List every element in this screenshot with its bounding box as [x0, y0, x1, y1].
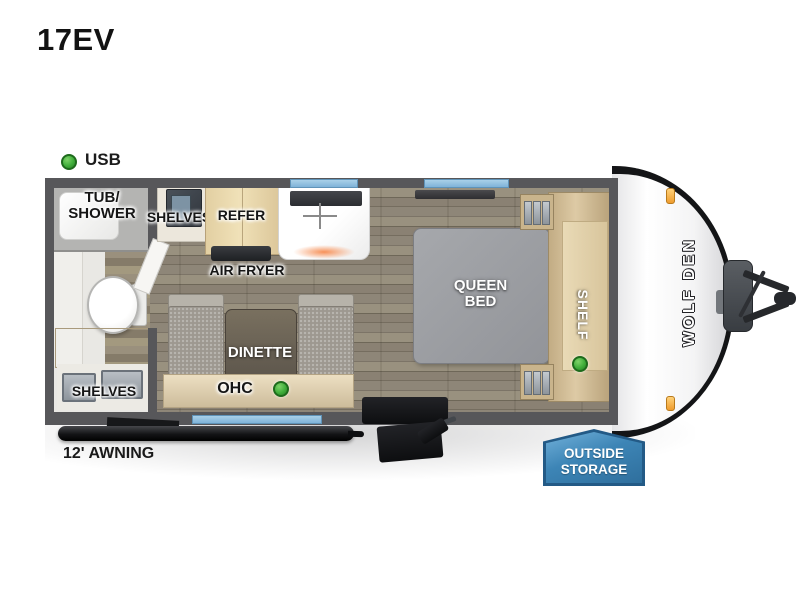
awning-tip	[348, 431, 364, 438]
floorplan-page: 17EV USB WOLF DEN TUB/ SHOWER S	[0, 0, 800, 600]
floorplan: TUB/ SHOWER SHELVES SHELVES REFER AIR FR…	[45, 178, 618, 425]
cubby-slat	[542, 201, 550, 225]
awning-label: 12' AWNING	[63, 445, 154, 463]
ohc-label: OHC	[205, 381, 265, 398]
brand-logo: WOLF DEN	[681, 214, 699, 370]
bath-wall-lower	[148, 328, 157, 425]
wall-right	[609, 178, 618, 425]
dinette-bench-left	[168, 306, 224, 380]
stove-glow	[293, 245, 355, 259]
toilet	[87, 276, 139, 334]
dinette-bench-right	[298, 306, 354, 380]
refer-label: REFER	[205, 208, 278, 223]
tub-shower-label: TUB/ SHOWER	[53, 190, 151, 222]
marker-light-top-icon	[666, 188, 675, 204]
faucet-stem-icon	[319, 203, 321, 229]
cubby-slat	[542, 371, 550, 395]
dinette-label: DINETTE	[205, 345, 315, 361]
storage-cubby-top	[520, 194, 554, 230]
usb-legend-label: USB	[85, 150, 121, 170]
hitch-coupler	[774, 292, 796, 305]
front-cap	[612, 174, 729, 431]
usb-indicator-ohc	[273, 381, 289, 397]
storage-cubby-bottom	[520, 364, 554, 400]
backsplash	[290, 191, 362, 206]
air-fryer-label: AIR FRYER	[203, 263, 291, 278]
awning-bar	[58, 426, 354, 441]
window-top-kitchen	[290, 179, 358, 188]
shelf-label: SHELF	[572, 265, 590, 365]
usb-indicator-shelf	[572, 356, 588, 372]
cubby-slat	[524, 371, 532, 395]
window-top-bedroom	[424, 179, 509, 188]
usb-legend-icon	[61, 154, 77, 170]
queen-bed-label: QUEEN BED	[413, 278, 548, 310]
kitchen-counter	[278, 186, 370, 260]
wall-left	[45, 178, 54, 425]
model-title: 17EV	[37, 22, 115, 58]
bath-slat-shelf	[55, 328, 152, 368]
air-fryer	[211, 246, 271, 261]
cubby-slat	[533, 201, 541, 225]
window-bottom-dinette	[192, 415, 322, 424]
marker-light-bottom-icon	[666, 396, 675, 411]
bath-shelves-label: SHELVES	[55, 384, 153, 399]
cubby-slat	[533, 371, 541, 395]
window-shade	[415, 190, 495, 199]
cubby-slat	[524, 201, 532, 225]
